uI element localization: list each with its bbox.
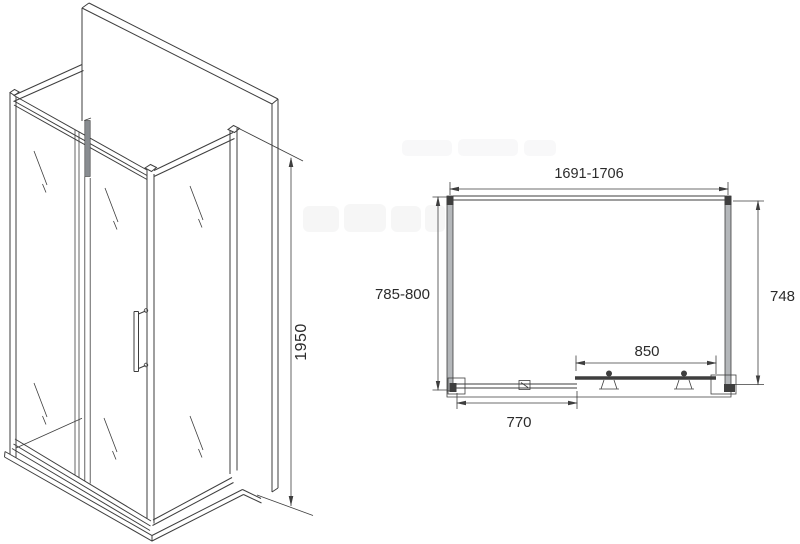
watermark-smudge bbox=[303, 139, 556, 232]
door-handle bbox=[134, 309, 148, 372]
plan-sliding-door bbox=[575, 371, 716, 390]
right-side-panel bbox=[153, 126, 240, 526]
plan-fixed-panel bbox=[453, 381, 577, 390]
plan-tray-outline bbox=[447, 391, 731, 397]
dim-height-label: 1950 bbox=[293, 323, 310, 361]
dim-depth-label: 785-800 bbox=[375, 286, 430, 303]
glass-reflection-marks bbox=[34, 151, 203, 460]
dim-fixed-panel-label: 770 bbox=[506, 414, 531, 431]
dim-door-opening-label: 850 bbox=[634, 343, 659, 360]
dim-side-panel: 748 bbox=[733, 200, 795, 386]
plan-back-panel bbox=[453, 196, 725, 200]
dim-width: 1691-1706 bbox=[449, 166, 729, 195]
fixed-glass-edge bbox=[84, 118, 91, 484]
dim-width-label: 1691-1706 bbox=[554, 166, 623, 182]
dim-door-opening: 850 bbox=[575, 343, 717, 374]
drawing: 1950 bbox=[0, 0, 800, 544]
plan-left-wall-profile bbox=[447, 196, 454, 391]
isometric-view: 1950 bbox=[5, 3, 314, 541]
dim-side-panel-label: 748 bbox=[770, 288, 795, 305]
back-wall-panel bbox=[82, 3, 278, 492]
technical-drawing-canvas: 1950 bbox=[0, 0, 800, 544]
shower-tray bbox=[5, 452, 262, 542]
plan-right-wall-profile bbox=[725, 196, 732, 391]
dim-height: 1950 bbox=[238, 128, 313, 516]
front-sliding-door-assembly bbox=[12, 96, 157, 531]
